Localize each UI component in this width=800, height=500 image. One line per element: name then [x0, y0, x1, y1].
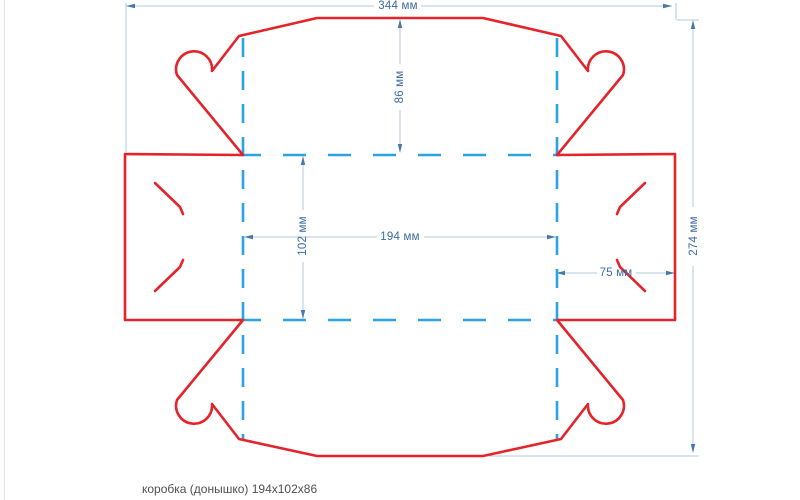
dim-label-total-height: 274 мм	[688, 216, 700, 255]
arrow-up-102	[301, 156, 305, 165]
dim-label-total-width: 344 мм	[378, 0, 417, 12]
dieline-canvas: 344 мм 274 мм 86 мм 102 мм 194 мм 75 мм	[0, 0, 800, 500]
arrow-left-194	[244, 235, 253, 239]
lock-slit-right-top	[617, 183, 645, 214]
dimension-lines	[126, 6, 693, 452]
drawing-page: 344 мм 274 мм 86 мм 102 мм 194 мм 75 мм …	[0, 0, 800, 500]
arrow-down-86	[398, 144, 402, 153]
drawing-caption: коробка (донышко) 194x102x86	[142, 482, 317, 496]
arrow-right-75	[666, 271, 675, 275]
arrow-left-344	[126, 4, 135, 8]
dim-label-flap-top-height: 86 мм	[394, 71, 406, 104]
dim-label-flap-side-width: 75 мм	[600, 267, 633, 279]
arrow-up-86	[398, 19, 402, 28]
lock-slit-left-top	[155, 183, 183, 214]
arrow-right-194	[547, 235, 556, 239]
arrow-up-274	[691, 20, 695, 29]
arrow-right-344	[663, 4, 672, 8]
dim-label-panel-height: 102 мм	[297, 216, 309, 255]
lock-slit-left-bottom	[155, 260, 183, 291]
arrow-down-102	[301, 310, 305, 319]
dim-label-panel-width: 194 мм	[380, 231, 419, 243]
arrow-down-274	[691, 444, 695, 453]
